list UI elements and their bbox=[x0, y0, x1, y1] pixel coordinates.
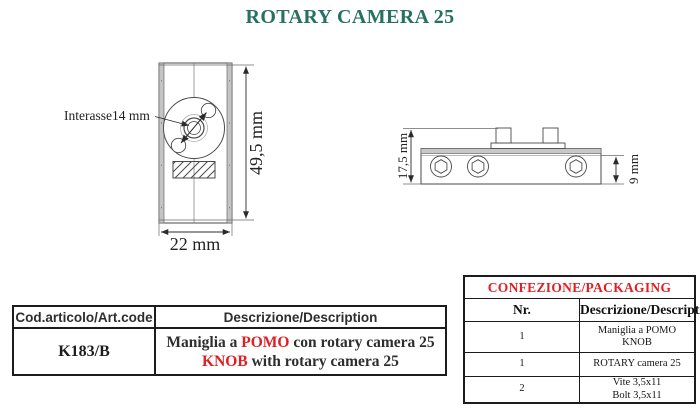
packaging-row-desc: ROTARY camera 25 bbox=[580, 353, 696, 377]
article-header-row: Cod.articolo/Art.code Descrizione/Descri… bbox=[13, 306, 446, 328]
packaging-desc-line: Bolt 3,5x11 bbox=[580, 390, 694, 403]
packaging-desc-header: Descrizione/Description bbox=[580, 299, 696, 322]
packaging-row-desc: Maniglia a POMO KNOB bbox=[580, 322, 696, 353]
article-code-header: Cod.articolo/Art.code bbox=[13, 306, 155, 328]
desc-it-highlight: POMO bbox=[241, 334, 289, 351]
packaging-row-qty: 2 bbox=[464, 377, 580, 404]
desc-it-post: con rotary camera 25 bbox=[289, 334, 434, 351]
packaging-row: 1 Maniglia a POMO KNOB bbox=[464, 322, 695, 353]
side-top-strip bbox=[421, 149, 601, 154]
packaging-desc-line: ROTARY camera 25 bbox=[580, 358, 694, 371]
width-dimension-label: 22 mm bbox=[170, 234, 221, 254]
packaging-header-row: Nr. Descrizione/Description bbox=[464, 299, 695, 322]
article-row: K183/B Maniglia a POMO con rotary camera… bbox=[13, 328, 446, 375]
packaging-desc-line: KNOB bbox=[580, 337, 694, 350]
packaging-desc-line: Vite 3,5x11 bbox=[580, 377, 694, 390]
packaging-title: CONFEZIONE/PACKAGING bbox=[464, 276, 695, 299]
article-desc-header: Descrizione/Description bbox=[155, 306, 446, 328]
packaging-row: 1 ROTARY camera 25 bbox=[464, 353, 695, 377]
packaging-nr-header: Nr. bbox=[464, 299, 580, 322]
hex-screw-1 bbox=[431, 156, 452, 177]
side-view-drawing: 17,5 mm 9 mm bbox=[388, 113, 663, 198]
post-left bbox=[496, 128, 511, 143]
desc-en-highlight: KNOB bbox=[202, 353, 248, 370]
desc-it-pre: Maniglia a bbox=[166, 334, 241, 351]
packaging-row-qty: 1 bbox=[464, 322, 580, 353]
packaging-title-row: CONFEZIONE/PACKAGING bbox=[464, 276, 695, 299]
hex-screw-2 bbox=[468, 156, 489, 177]
post-right bbox=[543, 128, 558, 143]
article-description: Maniglia a POMO con rotary camera 25 KNO… bbox=[155, 328, 446, 375]
mount-plate bbox=[491, 143, 565, 149]
height-dimension-label: 49,5 mm bbox=[246, 111, 266, 175]
front-view-drawing: Interasse14 mm 49,5 mm 22 mm bbox=[55, 50, 290, 255]
hex-screw-3 bbox=[566, 156, 587, 177]
article-code-value: K183/B bbox=[13, 328, 155, 375]
total-height-dimension-label: 17,5 mm bbox=[395, 133, 410, 179]
profile-left-strip bbox=[159, 63, 164, 223]
packaging-row: 2 Vite 3,5x11 Bolt 3,5x11 bbox=[464, 377, 695, 404]
datasheet-page: ROTARY CAMERA 25 Interasse14 mm bbox=[0, 0, 700, 416]
packaging-row-desc: Vite 3,5x11 Bolt 3,5x11 bbox=[580, 377, 696, 404]
profile-right-strip bbox=[227, 63, 232, 223]
body-height-dimension-label: 9 mm bbox=[626, 154, 641, 184]
article-desc-line-italian: Maniglia a POMO con rotary camera 25 bbox=[156, 333, 445, 352]
page-title: ROTARY CAMERA 25 bbox=[0, 6, 700, 29]
packaging-row-qty: 1 bbox=[464, 353, 580, 377]
packaging-desc-line: Maniglia a POMO bbox=[580, 325, 694, 338]
article-desc-line-english: KNOB with rotary camera 25 bbox=[156, 352, 445, 371]
hatched-insert bbox=[173, 162, 215, 179]
article-table: Cod.articolo/Art.code Descrizione/Descri… bbox=[12, 305, 447, 376]
interasse-label: Interasse14 mm bbox=[64, 108, 150, 123]
desc-en-post: with rotary camera 25 bbox=[248, 353, 399, 370]
packaging-table: CONFEZIONE/PACKAGING Nr. Descrizione/Des… bbox=[463, 275, 696, 404]
